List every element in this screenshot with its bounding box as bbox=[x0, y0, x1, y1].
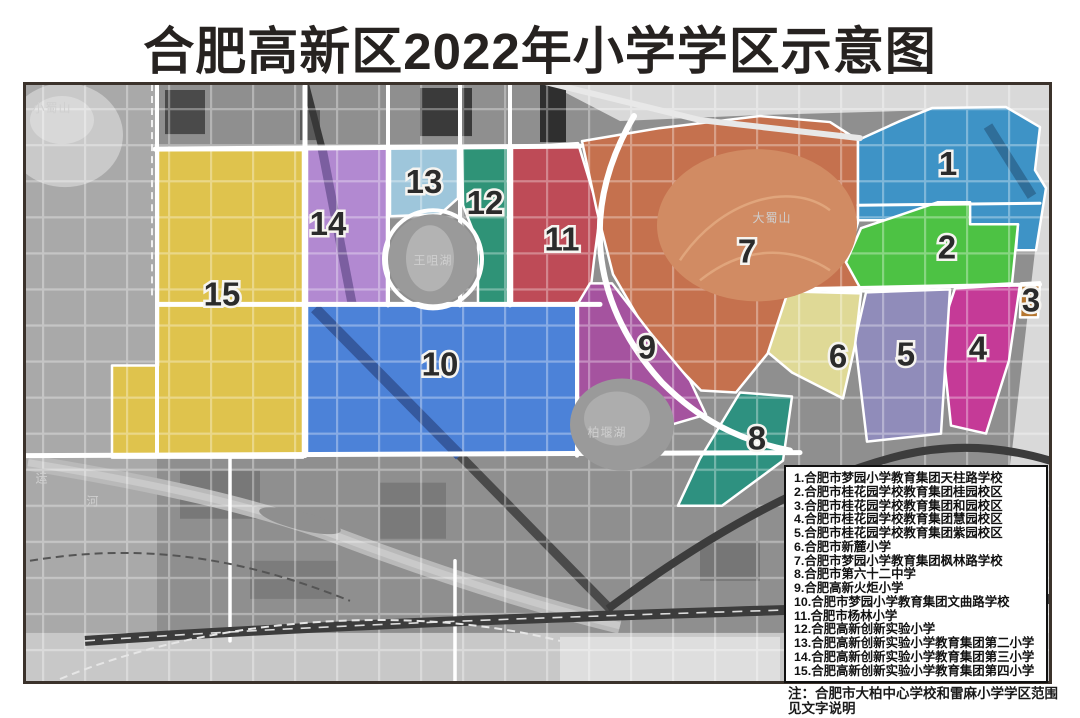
region-11-label: 11 bbox=[545, 220, 580, 257]
region-4-label: 4 bbox=[969, 329, 988, 366]
map-note-line2: 见文字说明 bbox=[788, 701, 1068, 716]
region-3-label: 3 bbox=[1022, 281, 1040, 318]
legend-item: 2.合肥市桂花园学校教育集团桂园校区 bbox=[794, 486, 1042, 500]
place-label-canal-char2: 河 bbox=[86, 495, 99, 509]
place-label-canal-char1: 运 bbox=[35, 472, 48, 486]
region-13-label: 13 bbox=[406, 163, 443, 200]
legend-item: 12.合肥高新创新实验小学 bbox=[794, 623, 1042, 637]
region-9-label: 9 bbox=[638, 328, 656, 365]
region-12-label: 12 bbox=[467, 184, 504, 221]
region-6-label: 6 bbox=[829, 337, 847, 374]
legend-item: 10.合肥市梦园小学教育集团文曲路学校 bbox=[794, 596, 1042, 610]
place-label-xiaoshushan: 小蜀山 bbox=[33, 101, 72, 115]
region-10-label: 10 bbox=[422, 345, 459, 382]
legend-item: 14.合肥高新创新实验小学教育集团第三小学 bbox=[794, 651, 1042, 665]
legend-item: 9.合肥高新火炬小学 bbox=[794, 582, 1042, 596]
region-7-label: 7 bbox=[738, 232, 756, 269]
place-label-baiyanhu: 柏堰湖 bbox=[588, 425, 627, 440]
legend-item: 1.合肥市梦园小学教育集团天柱路学校 bbox=[794, 472, 1042, 486]
legend-item: 6.合肥市新麓小学 bbox=[794, 541, 1042, 555]
legend-item: 5.合肥市桂花园学校教育集团紫园校区 bbox=[794, 527, 1042, 541]
page: 合肥高新区2022年小学学区示意图 bbox=[0, 0, 1080, 718]
legend-list: 1.合肥市梦园小学教育集团天柱路学校2.合肥市桂花园学校教育集团桂园校区3.合肥… bbox=[794, 472, 1042, 678]
legend-item: 8.合肥市第六十二中学 bbox=[794, 568, 1042, 582]
region-14-label: 14 bbox=[310, 205, 347, 242]
place-label-dashushan: 大蜀山 bbox=[753, 211, 792, 225]
place-label-wangjuhu: 王咀湖 bbox=[414, 252, 453, 267]
region-5-label: 5 bbox=[897, 335, 915, 372]
legend-item: 13.合肥高新创新实验小学教育集团第二小学 bbox=[794, 637, 1042, 651]
page-title: 合肥高新区2022年小学学区示意图 bbox=[0, 10, 1080, 84]
map-note-line1: 注：合肥市大柏中心学校和雷麻小学学区范围 bbox=[788, 686, 1068, 701]
legend-box: 1.合肥市梦园小学教育集团天柱路学校2.合肥市桂花园学校教育集团桂园校区3.合肥… bbox=[784, 465, 1048, 683]
region-8-label: 8 bbox=[748, 420, 766, 457]
legend-item: 15.合肥高新创新实验小学教育集团第四小学 bbox=[794, 665, 1042, 679]
region-15-label: 15 bbox=[204, 275, 241, 312]
map-note: 注：合肥市大柏中心学校和雷麻小学学区范围 见文字说明 bbox=[788, 686, 1068, 716]
legend-item: 4.合肥市桂花园学校教育集团慧园校区 bbox=[794, 513, 1042, 527]
region-2-label: 2 bbox=[938, 228, 956, 265]
region-1-label: 1 bbox=[939, 145, 957, 182]
